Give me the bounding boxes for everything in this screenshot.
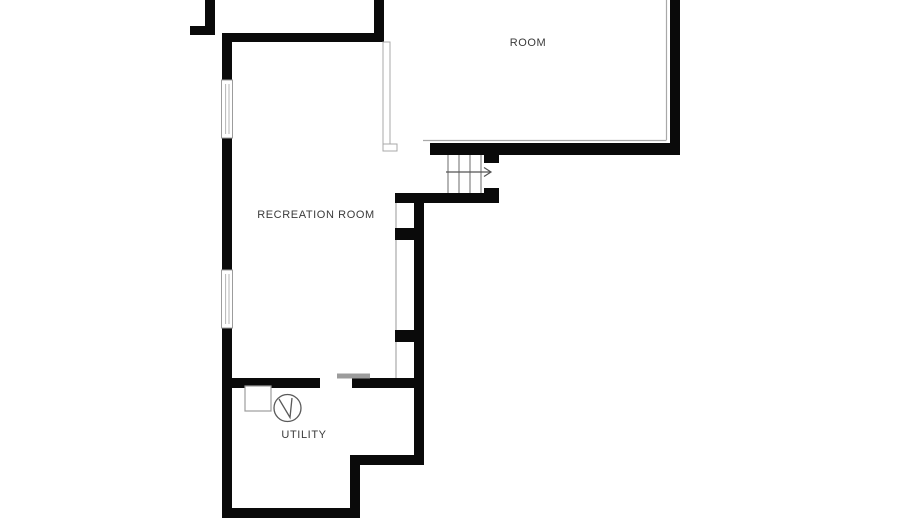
floor-plan-canvas: ROOM RECREATION ROOM UTILITY <box>0 0 900 529</box>
room-label: ROOM <box>510 37 547 49</box>
wall-top-horizontal <box>222 33 384 42</box>
window-icon <box>222 270 233 328</box>
wall-room-bottom <box>430 143 680 155</box>
stairs-up-arrow-icon <box>446 168 491 177</box>
wall-utility-step <box>350 455 424 518</box>
utility-box-icon <box>245 386 271 411</box>
room-interior-outline <box>423 0 667 141</box>
stair-treads <box>448 155 481 193</box>
door-header-bar <box>337 374 370 379</box>
wall-room-right <box>670 0 680 155</box>
utility-label: UTILITY <box>281 429 326 441</box>
wall-utility-bottom <box>222 508 360 518</box>
recreation-room-label: RECREATION ROOM <box>257 209 375 221</box>
floor-plan-drawing: ROOM RECREATION ROOM UTILITY <box>0 0 900 529</box>
room-open-boundary <box>383 42 397 151</box>
wall-stair-bottom <box>395 193 499 203</box>
wall-top-left-stub <box>190 0 215 35</box>
window-icon <box>222 80 233 138</box>
pump-circle-icon <box>274 395 301 422</box>
